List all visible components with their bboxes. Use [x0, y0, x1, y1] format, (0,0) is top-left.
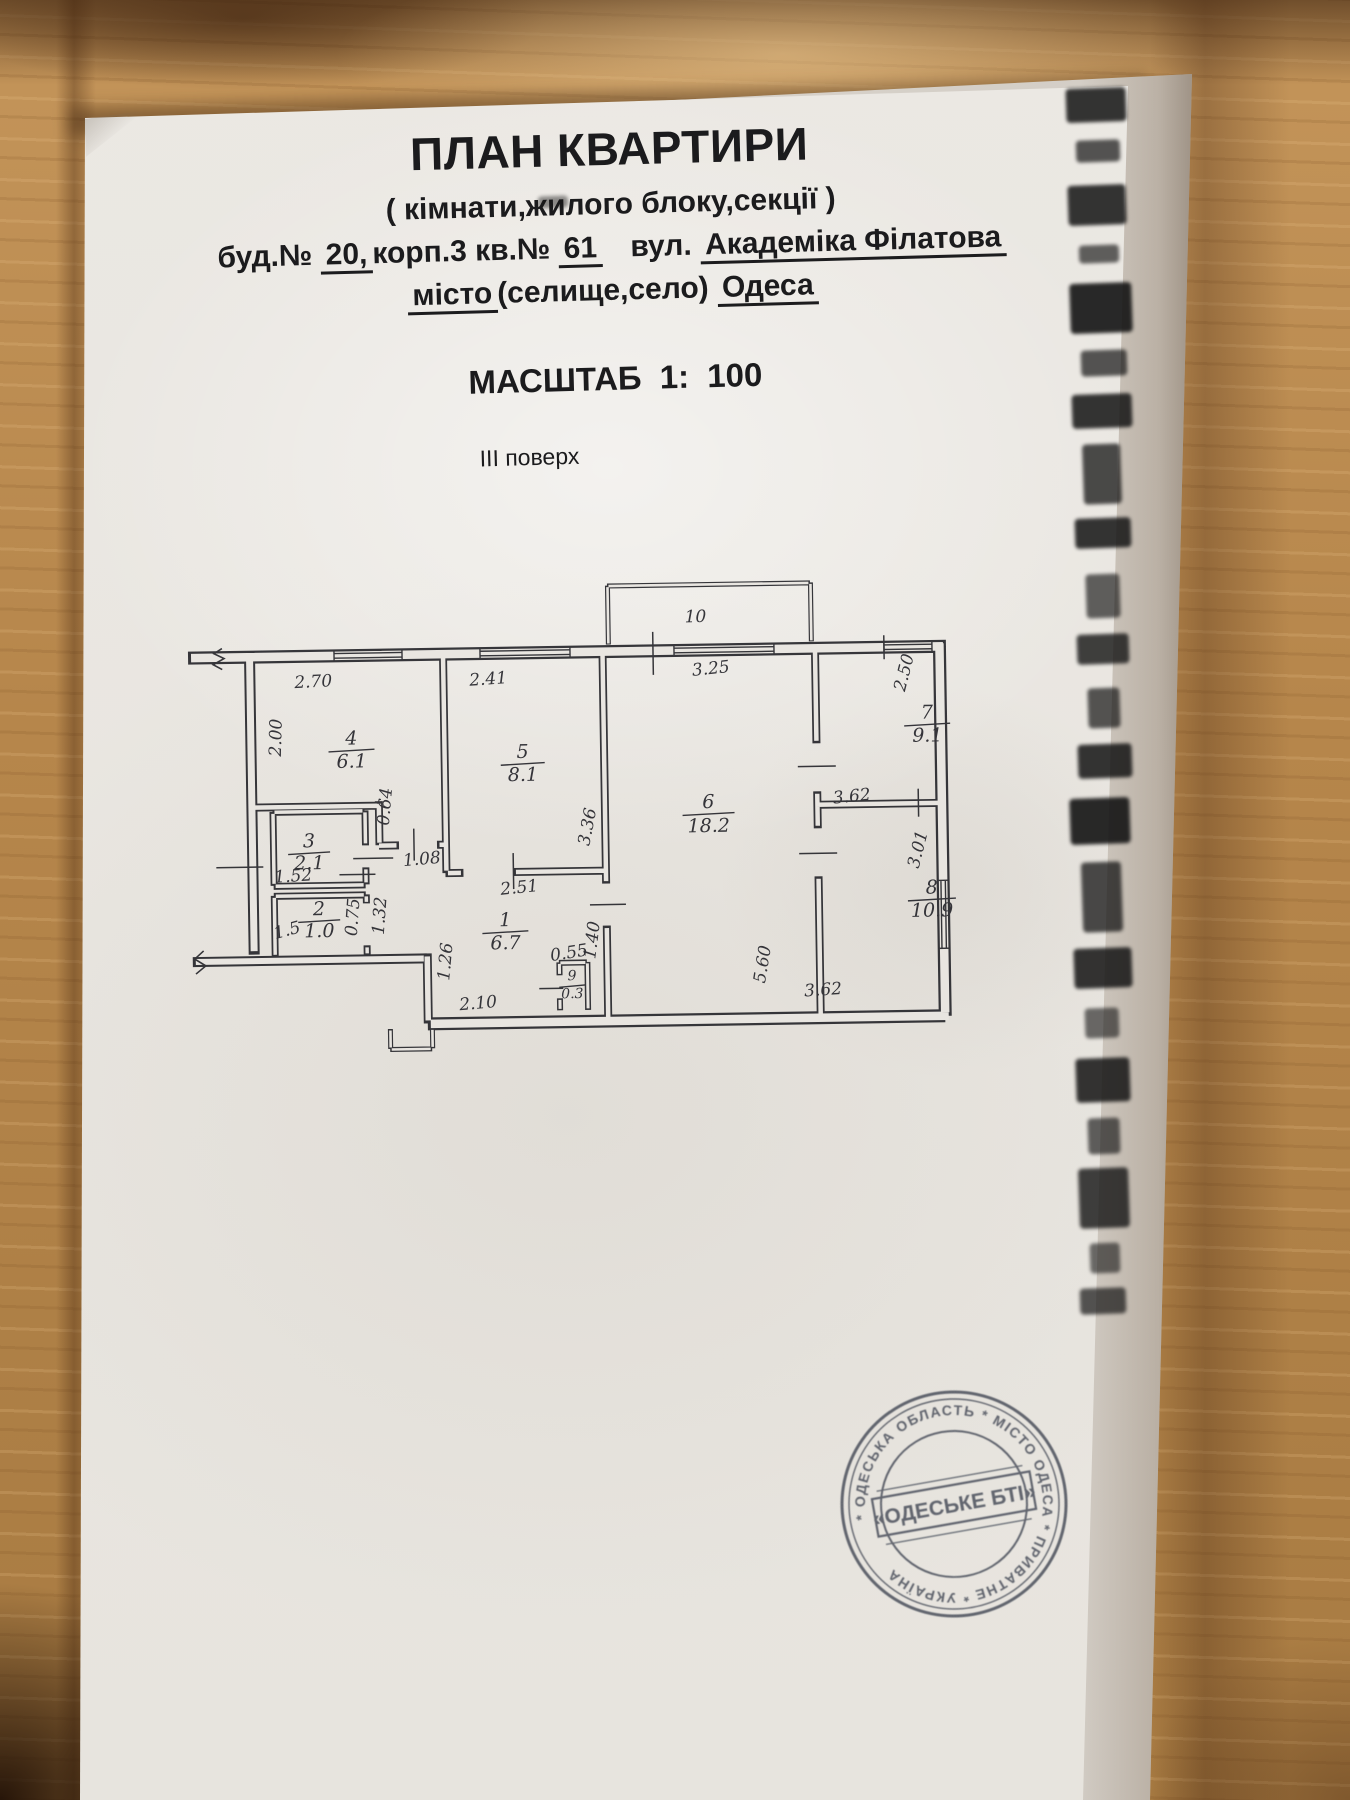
toner-streak — [1077, 743, 1132, 779]
svg-text:6.1: 6.1 — [336, 750, 367, 772]
dimension-label: 0.75 — [342, 898, 365, 937]
svg-text:6.7: 6.7 — [490, 932, 521, 954]
toner-streak — [1085, 573, 1121, 618]
room-label: 21.0 — [298, 898, 341, 943]
toner-streak — [1081, 349, 1128, 377]
ink-smudge — [538, 195, 568, 208]
toner-streak — [1076, 139, 1121, 163]
dimension-label: 2.00 — [266, 718, 287, 757]
dimension-label: 3.01 — [904, 829, 933, 871]
toner-streak — [1069, 797, 1131, 845]
toner-streak — [1079, 244, 1120, 263]
svg-text:4: 4 — [344, 727, 357, 749]
street-label: вул. — [630, 229, 692, 264]
svg-text:5: 5 — [516, 741, 528, 763]
svg-text:8: 8 — [926, 876, 938, 898]
toner-streak — [1089, 1242, 1120, 1273]
street-name: Академіка Філатова — [700, 220, 1007, 264]
toner-streak — [1067, 184, 1126, 226]
toner-streak — [1074, 517, 1131, 549]
dimension-label: 1.40 — [580, 920, 605, 960]
dimension-label: 3.25 — [691, 657, 731, 681]
room-label: 10 — [684, 607, 706, 627]
svg-text:10.9: 10.9 — [911, 899, 954, 922]
toner-streak — [1087, 1117, 1120, 1154]
svg-text:9: 9 — [567, 968, 576, 984]
room-label: 58.1 — [500, 741, 545, 787]
room-label: 90.3 — [559, 968, 586, 1002]
dimension-label: 2.50 — [890, 652, 919, 695]
svg-text:10: 10 — [684, 607, 706, 627]
house-label: буд.№ — [217, 239, 313, 275]
svg-text:1: 1 — [499, 909, 511, 931]
svg-text:1.0: 1.0 — [304, 920, 335, 942]
city-name: Одеса — [717, 268, 820, 307]
dimension-label: 2.70 — [293, 671, 333, 693]
svg-text:9.1: 9.1 — [912, 724, 943, 746]
toner-streak — [1076, 633, 1129, 665]
toner-streak — [1073, 947, 1132, 989]
svg-text:18.2: 18.2 — [687, 815, 730, 838]
svg-text:7: 7 — [921, 701, 934, 723]
apartment-number: 61 — [558, 231, 602, 268]
city-label: місто — [407, 277, 498, 315]
dimension-label: 3.62 — [804, 979, 843, 1002]
room-label: 16.7 — [482, 909, 529, 955]
toner-streak — [1080, 1287, 1127, 1315]
room-label: 46.1 — [328, 727, 375, 773]
city-paren: (селище,село) — [497, 271, 709, 310]
toner-streak — [1071, 393, 1132, 429]
toner-streak — [1084, 1007, 1119, 1038]
document-header: ПЛАН КВАРТИРИ ( кімнати,жилого блоку,сек… — [85, 66, 1140, 483]
room-label: 618.2 — [682, 791, 735, 838]
svg-text:2: 2 — [312, 898, 325, 920]
dimension-label: 1.26 — [434, 942, 457, 982]
toner-streak — [1075, 1057, 1131, 1103]
toner-streak — [1082, 443, 1122, 504]
dimension-label: 1.08 — [402, 848, 442, 871]
dimension-label: 2.10 — [457, 992, 498, 1015]
toner-streak — [1078, 1167, 1130, 1229]
room-label: 32.1 — [288, 830, 331, 875]
photographed-document: ПЛАН КВАРТИРИ ( кімнати,жилого блоку,сек… — [0, 0, 1350, 1800]
svg-text:6: 6 — [702, 791, 714, 813]
dimension-label: 2.51 — [498, 876, 539, 900]
toner-streak — [1065, 87, 1126, 123]
dimension-label: 3.62 — [832, 785, 872, 809]
toner-streak — [1081, 861, 1123, 932]
building-number: корп.3 — [372, 235, 467, 271]
dimension-label: 2.41 — [468, 668, 508, 691]
bti-stamp: * ОДЕСЬКА ОБЛАСТЬ * МІСТО ОДЕСА * ПРИВАТ… — [815, 1365, 1093, 1643]
scale-label: МАСШТАБ 1: 100 — [93, 346, 1139, 412]
dimension-label: 0.64 — [374, 787, 397, 826]
dimension-label: 3.36 — [574, 806, 601, 847]
floor-plan-drawing: 2.702.413.252.000.641.081.521.50.751.322… — [176, 494, 985, 1066]
dimension-label: 1.32 — [369, 896, 392, 935]
dimension-label: 5.60 — [750, 944, 776, 985]
svg-text:0.3: 0.3 — [561, 986, 584, 1002]
apartment-label: кв.№ — [475, 232, 551, 267]
svg-text:8.1: 8.1 — [508, 764, 539, 786]
house-number: 20, — [320, 237, 373, 274]
toner-streak — [1069, 282, 1133, 334]
toner-streak — [1087, 687, 1120, 728]
svg-text:2.1: 2.1 — [293, 852, 325, 874]
svg-text:3: 3 — [303, 830, 315, 852]
